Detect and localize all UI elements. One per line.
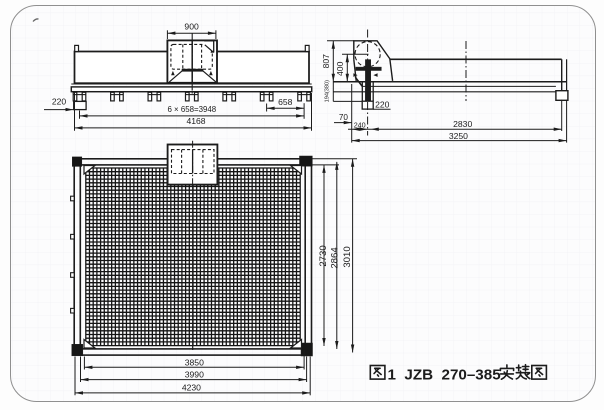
svg-text:807: 807 (321, 54, 331, 69)
svg-text:400: 400 (335, 61, 345, 76)
svg-text:194(380): 194(380) (325, 80, 331, 103)
svg-text:220: 220 (375, 99, 390, 109)
svg-text:900: 900 (184, 21, 199, 31)
svg-text:3990: 3990 (185, 369, 204, 379)
svg-text:2830: 2830 (453, 119, 472, 129)
svg-text:70: 70 (339, 113, 349, 122)
svg-text:3010: 3010 (342, 246, 353, 267)
svg-text:2864: 2864 (329, 247, 340, 269)
svg-text:6 × 658=3948: 6 × 658=3948 (167, 105, 216, 114)
svg-text:3250: 3250 (449, 131, 468, 141)
svg-text:3850: 3850 (185, 357, 204, 367)
svg-text:658: 658 (278, 97, 293, 107)
svg-text:4230: 4230 (182, 383, 201, 393)
svg-text:2730: 2730 (318, 245, 329, 266)
svg-text:4168: 4168 (186, 116, 205, 126)
svg-text:1 JZB 270–385: 1 JZB 270–385 (388, 367, 502, 384)
svg-text:220: 220 (52, 97, 67, 107)
